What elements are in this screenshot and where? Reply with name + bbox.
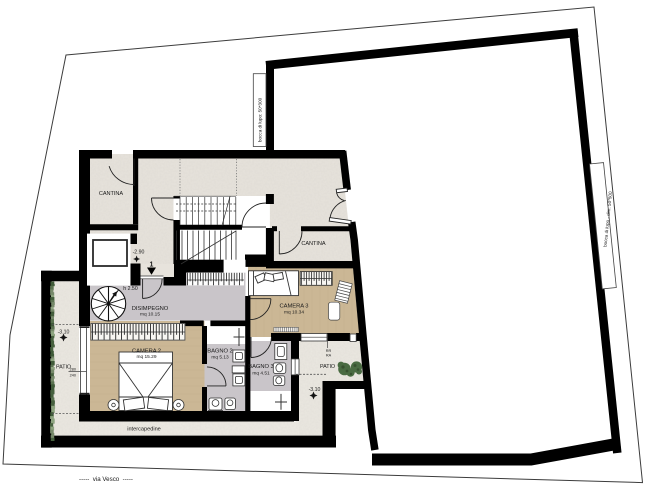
svg-text:PATIO: PATIO [56,365,71,371]
svg-text:CAMERA 3: CAMERA 3 [280,303,309,309]
svg-text:1: 1 [150,262,154,269]
svg-text:mq 10.15: mq 10.15 [140,311,160,317]
svg-text:BAGNO 3: BAGNO 3 [248,364,273,370]
svg-text:CAMERA 2: CAMERA 2 [132,348,161,354]
svg-text:bocca di lupo: 50*300: bocca di lupo: 50*300 [258,97,263,142]
svg-text:----- via Vesco -----: ----- via Vesco ----- [79,476,133,483]
svg-text:mq 4.51: mq 4.51 [252,371,270,377]
svg-text:-2.90: -2.90 [133,250,145,256]
svg-text:DISIMPEGNO: DISIMPEGNO [132,306,169,312]
svg-text:mq 15.29: mq 15.29 [136,354,156,360]
svg-text:h 2.50: h 2.50 [123,286,138,292]
svg-text:-3.10: -3.10 [309,387,321,393]
svg-text:RR: RR [326,349,332,353]
svg-text:mq 10.34: mq 10.34 [284,310,304,316]
svg-text:240: 240 [70,374,76,378]
svg-text:CANTINA: CANTINA [99,191,124,197]
svg-text:CANTINA: CANTINA [301,241,326,247]
svg-text:BAGNO 2: BAGNO 2 [207,348,232,354]
svg-text:intercapedine: intercapedine [127,427,161,433]
svg-text:RA: RA [326,354,332,358]
svg-text:PATIO: PATIO [320,364,335,370]
svg-text:mq 5.13: mq 5.13 [211,354,229,360]
